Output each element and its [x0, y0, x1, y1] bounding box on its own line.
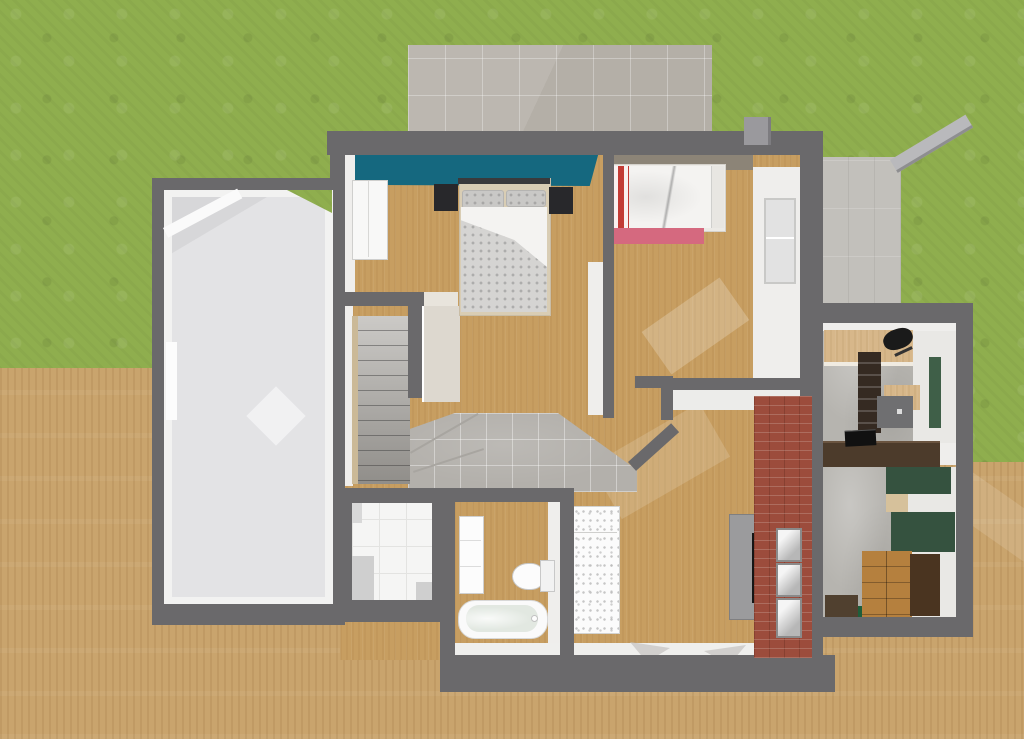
- stair-doorway-threshold[interactable]: [424, 292, 458, 306]
- master-pillow-right: [506, 190, 546, 207]
- kids-pink-rug[interactable]: [606, 228, 704, 244]
- wall-stair-inner: [408, 306, 422, 398]
- divider-west-face: [588, 262, 603, 415]
- nightstand-right[interactable]: [549, 187, 573, 214]
- kids-window[interactable]: [764, 198, 796, 284]
- garage-window[interactable]: [166, 342, 177, 420]
- wall-frame-3[interactable]: [776, 598, 802, 638]
- driveway-patio: [408, 45, 712, 133]
- kids-window-mullion: [766, 237, 794, 239]
- living-daybed-pillow-line: [573, 532, 617, 533]
- wall-south: [440, 655, 835, 692]
- utility-shadow-2: [416, 582, 432, 601]
- dressing-tan-patch: [886, 494, 908, 512]
- kids-bed-duvet: [629, 166, 712, 228]
- master-headboard: [458, 178, 550, 184]
- wall-utility-south: [337, 600, 446, 622]
- office-laptop[interactable]: [845, 429, 877, 447]
- utility-shadow-1: [352, 556, 374, 601]
- living-daybed[interactable]: [572, 506, 620, 634]
- toilet-tank: [540, 560, 555, 592]
- annex-wall-east: [956, 303, 973, 637]
- wardrobe-door-split: [368, 181, 369, 257]
- wall-stair-north: [340, 292, 424, 306]
- wall-frame-1[interactable]: [776, 528, 802, 562]
- wall-west-upper: [330, 131, 345, 186]
- wall-kids-south: [673, 378, 815, 390]
- dressing-dresser-side: [910, 554, 940, 616]
- annex-divider-brown: [823, 441, 940, 469]
- bathtub-drain: [531, 615, 538, 622]
- staircase-side-strip: [352, 316, 358, 484]
- wall-bath-north: [440, 488, 574, 502]
- annex-wall-south: [822, 617, 973, 637]
- shower-panel-line-1: [460, 540, 481, 541]
- master-wardrobe[interactable]: [352, 180, 388, 260]
- shower-panel[interactable]: [459, 516, 484, 594]
- floor-plan-render: [0, 0, 1024, 739]
- bottom-inner-wall-face: [455, 643, 800, 655]
- dressing-green-panel-2[interactable]: [891, 512, 955, 552]
- kids-bed-footboard: [711, 166, 724, 228]
- wall-bedroom-divider: [603, 150, 614, 418]
- staircase-flight[interactable]: [352, 316, 410, 484]
- wall-utility-east: [432, 503, 446, 602]
- bathtub-basin: [466, 605, 538, 632]
- stair-upper-landing: [422, 306, 460, 402]
- office-green-runner[interactable]: [929, 357, 941, 428]
- office-chair-mat[interactable]: [877, 396, 913, 428]
- office-mat-dot: [897, 409, 902, 414]
- gate-pillar[interactable]: [744, 117, 771, 145]
- dressing-dresser[interactable]: [862, 551, 912, 619]
- side-terrace: [822, 157, 901, 305]
- shower-panel-line-2: [460, 566, 481, 567]
- wall-frame-2[interactable]: [776, 563, 802, 597]
- garage-floor: [172, 197, 325, 597]
- wall-utility-north: [337, 488, 446, 503]
- utility-shadow-3: [352, 503, 362, 523]
- annex-wall-north: [822, 303, 973, 323]
- wall-bath-divider: [560, 490, 574, 660]
- annex-divider-white-end: [940, 443, 956, 465]
- nightstand-left[interactable]: [434, 184, 458, 211]
- dressing-green-panel-1[interactable]: [886, 467, 951, 494]
- wall-corridor-v: [661, 376, 673, 420]
